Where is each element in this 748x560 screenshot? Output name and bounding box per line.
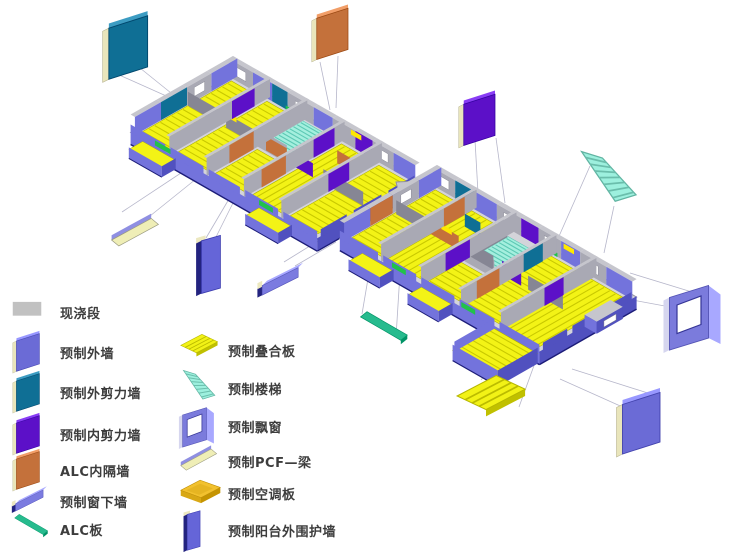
legend-label: ALC板 bbox=[60, 520, 103, 539]
legend-label: 预制阳台外围护墙 bbox=[228, 521, 336, 540]
legend-label: 预制外墙 bbox=[60, 343, 114, 362]
legend-item-precast-balcony-enclosure-wall: 预制阳台外围护墙 bbox=[176, 506, 336, 554]
legend-label: 预制叠合板 bbox=[228, 341, 296, 360]
legend-label: 预制外剪力墙 bbox=[60, 383, 141, 402]
legend-label: 预制PCF—梁 bbox=[228, 452, 311, 471]
alc-panel-icon bbox=[8, 504, 54, 554]
diagram-stage: 现浇段 预制外墙 预制外剪力墙 预制内剪力墙 ALC内隔墙 预制窗下墙 ALC板… bbox=[0, 0, 748, 560]
legend-label: 预制楼梯 bbox=[228, 379, 282, 398]
legend-label: 预制飘窗 bbox=[228, 417, 282, 436]
precast-balcony-enclosure-wall-icon bbox=[176, 505, 222, 555]
legend-label: 现浇段 bbox=[60, 303, 101, 322]
callout-balcony-enclosure-wall bbox=[196, 235, 220, 296]
legend-label: 预制内剪力墙 bbox=[60, 425, 141, 444]
legend-label: 预制空调板 bbox=[228, 484, 296, 503]
legend-item-alc-panel: ALC板 bbox=[8, 505, 103, 553]
